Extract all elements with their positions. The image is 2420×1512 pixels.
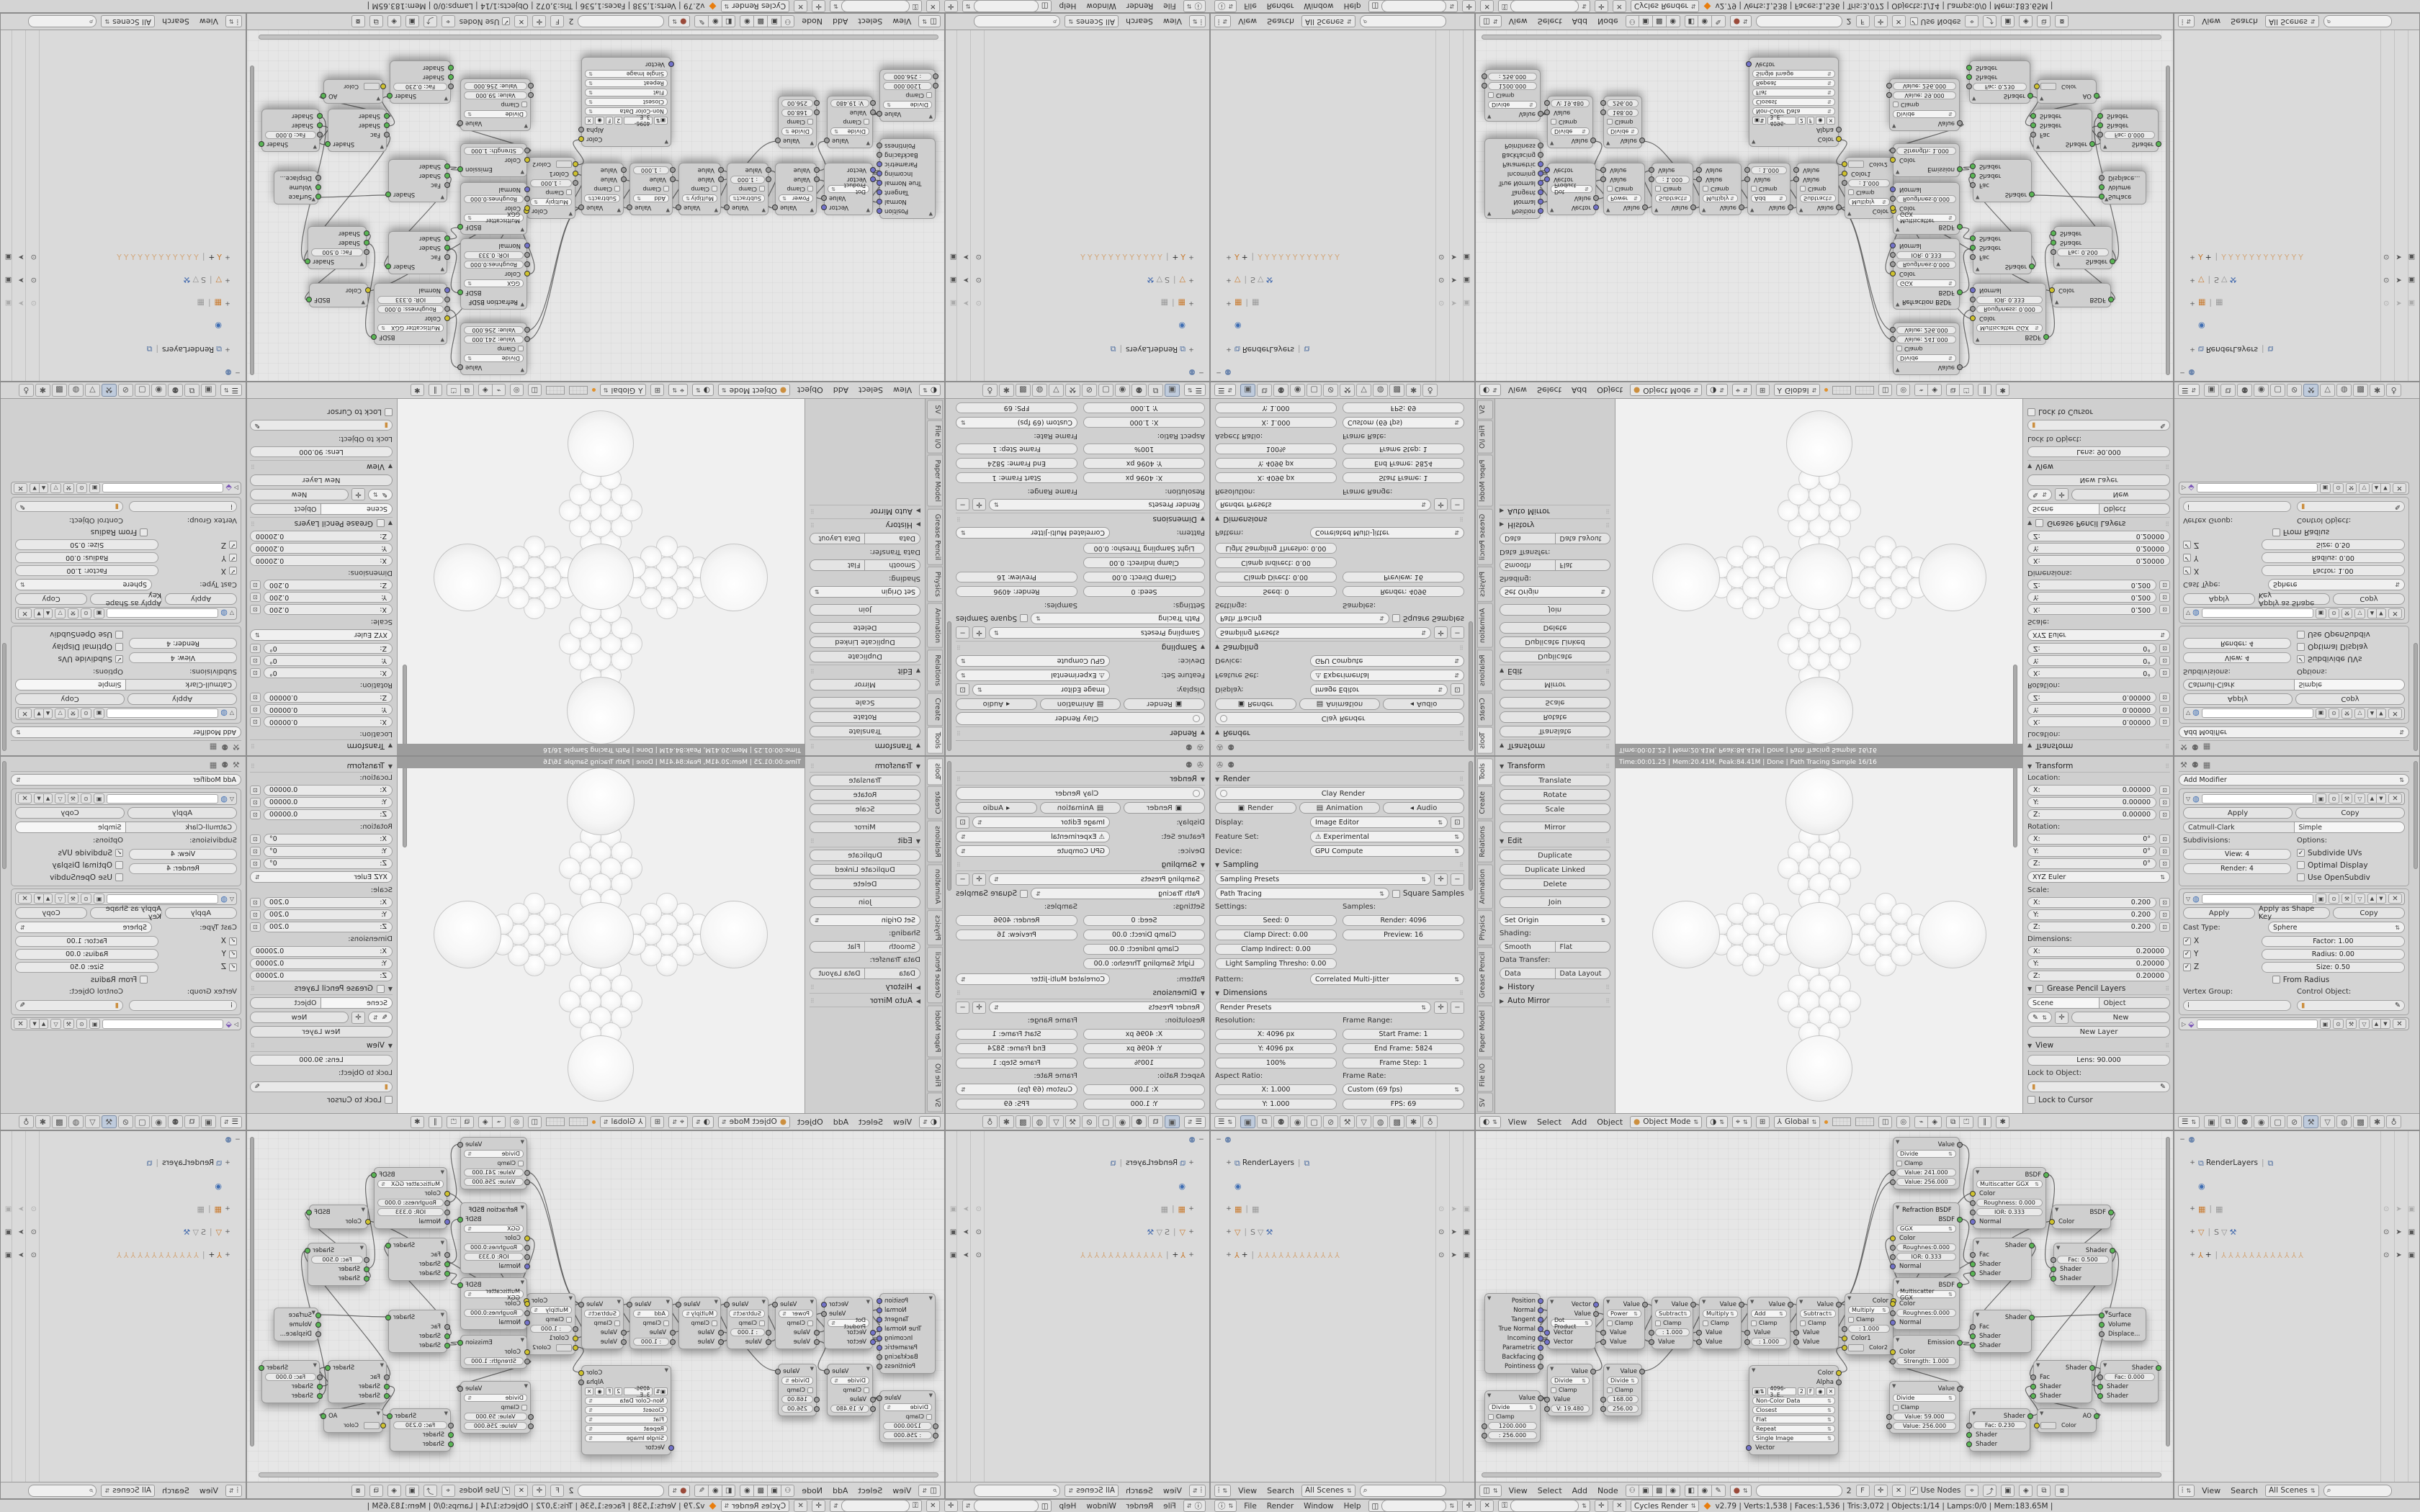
node-value-field[interactable]: Value: 59.000 — [464, 1413, 527, 1421]
value-field[interactable]: Seed: 0 — [1215, 915, 1337, 926]
checkbox[interactable] — [518, 1161, 524, 1166]
action-button[interactable]: ◂Audio — [1383, 802, 1464, 814]
checkbox[interactable] — [1655, 186, 1661, 192]
header-icon-button[interactable]: ⌖ — [442, 16, 455, 28]
node-socket-icon[interactable] — [877, 161, 882, 167]
pencil-dropdown[interactable]: ✎⇅ — [2027, 489, 2052, 500]
checkbox[interactable] — [864, 1387, 869, 1393]
editor-type-button[interactable]: ⓘ⇅ — [1214, 0, 1237, 12]
image-name[interactable]: 4096-3..E.. — [624, 117, 653, 125]
checkbox[interactable]: ✓ — [2183, 554, 2191, 562]
value-field[interactable]: FPS: 69 — [956, 403, 1077, 414]
value-field[interactable]: Clamp Indirect: 0.00 — [1215, 944, 1337, 955]
value-field[interactable]: Preview: 16 — [956, 930, 1077, 940]
expand-icon[interactable]: + — [1188, 346, 1195, 353]
checkbox-wrap[interactable]: ✓Z — [2183, 963, 2259, 971]
node-row-val[interactable]: : 1.000 — [530, 179, 572, 188]
presets-dropdown[interactable]: Sampling Presets⇅ — [1215, 627, 1431, 639]
action-button[interactable]: Duplicate Linked — [810, 636, 920, 648]
menu-item[interactable]: File — [1241, 2, 1260, 11]
axis-value-field[interactable]: Y:0° — [2027, 846, 2156, 857]
node-socket-icon[interactable] — [524, 1320, 530, 1326]
node-socket-icon[interactable] — [1836, 1370, 1842, 1376]
node-socket-icon[interactable] — [676, 1302, 681, 1308]
layout-select[interactable]: ◫⇅ — [962, 0, 1052, 12]
properties-tab[interactable]: ⊘ — [1323, 384, 1338, 397]
checkbox[interactable] — [712, 186, 717, 192]
node-socket-icon[interactable] — [1836, 1380, 1842, 1385]
dropdown[interactable]: Set Origin⇅ — [1500, 586, 1610, 598]
scrollbar[interactable] — [1469, 621, 1473, 751]
tool-shelf-tab-animation[interactable]: Animation — [927, 603, 943, 648]
expand-icon[interactable]: + — [1188, 300, 1195, 307]
node-socket-icon[interactable] — [578, 1380, 584, 1385]
scrollbar[interactable] — [947, 621, 951, 751]
properties-tab[interactable]: ▩ — [1389, 1115, 1404, 1128]
properties-tab[interactable]: ▢ — [2270, 384, 2285, 397]
node-row-chk[interactable]: Clamp — [1488, 91, 1537, 100]
properties-tab[interactable]: ⧉ — [1257, 1115, 1272, 1128]
node[interactable]: ▼ShaderFac: 0.500ShaderShader — [2053, 226, 2112, 269]
node-socket-icon[interactable] — [1744, 1339, 1750, 1345]
action-button[interactable]: Mirror — [1500, 679, 1610, 690]
toggle-icon[interactable]: ▣ — [1464, 1251, 1470, 1259]
lock-icon[interactable]: ⊡ — [2159, 786, 2170, 795]
node-socket-icon[interactable] — [1957, 166, 1963, 172]
cast-value-field[interactable]: Factor: 1.00 — [2262, 936, 2405, 947]
pause-icon-button[interactable]: ∥ — [429, 384, 442, 397]
toggle-button[interactable]: Simple — [15, 822, 126, 833]
node-socket-icon[interactable] — [1544, 1406, 1550, 1412]
node-socket-icon[interactable] — [2108, 297, 2114, 302]
node-dropdown[interactable]: Repeat⇅ — [585, 1425, 668, 1433]
node-socket-icon[interactable] — [1538, 180, 1543, 186]
dropdown[interactable]: Add Modifier⇅ — [11, 774, 241, 786]
node-value-field[interactable]: Roughnes:0.000 — [1896, 195, 1956, 203]
value-field[interactable]: Seed: 0 — [1083, 915, 1205, 926]
lock-icon[interactable]: ⊡ — [250, 693, 261, 702]
tool-shelf-tab-physics[interactable]: Physics — [927, 910, 943, 945]
move-modifier-button[interactable]: ▲ — [39, 1019, 48, 1029]
properties-tab[interactable]: ⧉ — [184, 384, 200, 397]
node-socket-icon[interactable] — [444, 245, 450, 251]
node-value-field[interactable]: Roughnes:0.000 — [464, 195, 524, 203]
action-button[interactable]: ▤Animation — [1299, 698, 1381, 710]
tool-shelf-tab-create[interactable]: Create — [927, 786, 943, 819]
node-value-field[interactable]: : 1.000 — [1848, 1325, 1890, 1333]
node-socket-icon[interactable] — [877, 171, 882, 176]
node-row-img[interactable]: ▣⇅4096-3..E..2F◉✕ — [585, 1387, 668, 1396]
checkbox[interactable] — [1392, 615, 1400, 623]
tool-shelf-tab-tools[interactable]: Tools — [927, 758, 943, 785]
dropdown[interactable]: Add Modifier⇅ — [2179, 774, 2409, 786]
properties-tab[interactable]: ◉ — [2254, 1115, 2269, 1128]
use-nodes-checkbox[interactable]: ✓Use Nodes — [1910, 17, 1961, 26]
node-checkbox[interactable]: Clamp — [1607, 119, 1633, 125]
cast-value-field[interactable]: Factor: 1.00 — [15, 936, 158, 947]
node-socket-icon[interactable] — [259, 141, 264, 147]
panel-title[interactable]: ▼Transform⠿ — [1500, 739, 1610, 752]
toggle-icon[interactable]: ▣ — [950, 276, 956, 284]
node-socket-icon[interactable] — [1590, 138, 1596, 143]
checkbox[interactable] — [521, 1405, 527, 1410]
modifier-toggle-icon[interactable]: ▽ — [55, 793, 66, 804]
value-field[interactable]: X: 1.000 — [1215, 1084, 1337, 1095]
node-row-sel[interactable]: Power⇅ — [779, 1309, 813, 1318]
modifier-toggle-icon[interactable]: ▣ — [89, 1019, 100, 1029]
node-dropdown[interactable]: Divide⇅ — [1607, 1377, 1639, 1385]
node-dropdown[interactable]: Subtract⇅ — [1655, 194, 1691, 202]
material-select[interactable]: ●⇅ — [668, 1485, 690, 1497]
properties-tab[interactable]: ▩ — [1389, 384, 1404, 397]
properties-tab[interactable]: ⚒ — [1065, 384, 1080, 397]
checkbox[interactable] — [377, 520, 385, 528]
modifier-header[interactable]: ▽◍▣⊙⚒▽▲▼✕ — [15, 792, 237, 805]
axis-value-field[interactable]: Z:0.20000 — [2027, 971, 2170, 981]
editor-type-button[interactable]: ◐⇅ — [919, 384, 941, 397]
lock-icon-button[interactable]: ⊡ — [1451, 816, 1464, 829]
node-row-val[interactable]: 1200.000 — [883, 81, 932, 91]
checkbox[interactable] — [115, 631, 123, 639]
node[interactable]: ▼BSDFColor — [309, 1205, 368, 1229]
restriction-toggles[interactable]: ⊙➤▣ — [5, 1205, 37, 1213]
presets-dropdown[interactable]: Sampling Presets⇅ — [989, 627, 1205, 639]
tool-shelf-tab-physics[interactable]: Physics — [927, 567, 943, 602]
node-checkbox[interactable]: Clamp — [1751, 1320, 1778, 1326]
delete-modifier-button[interactable]: ✕ — [14, 483, 27, 493]
node-row-chk[interactable]: Clamp — [781, 1385, 813, 1395]
cast-value-field[interactable]: Radius: 0.00 — [2262, 949, 2405, 960]
node[interactable]: ▼ValueSubtract⇅Clamp: 1.000Value — [727, 163, 768, 215]
checkbox-wrap[interactable]: Lock to Cursor — [327, 408, 393, 417]
node-socket-icon[interactable] — [524, 243, 530, 248]
modifier-toggle-icon[interactable]: ⊙ — [2329, 708, 2339, 719]
node[interactable]: ▼ShaderFac: 0.500ShaderShader — [308, 226, 367, 269]
toggle-icon[interactable]: ➤ — [963, 300, 969, 307]
node-row-val[interactable]: Fac: 0.500 — [311, 248, 363, 257]
manipulator-icon-button[interactable]: ⊞ — [1756, 384, 1770, 397]
menu-item[interactable]: View — [1160, 17, 1185, 27]
properties-tab[interactable]: ◍ — [2336, 384, 2352, 397]
node-value-field[interactable]: IOR: 0.333 — [464, 251, 524, 259]
checkbox-wrap[interactable]: ✓Y — [161, 950, 237, 958]
node-row-val[interactable]: IOR: 0.333 — [377, 1207, 444, 1217]
node-socket-icon[interactable] — [775, 1369, 781, 1374]
expand-icon[interactable]: − — [2179, 369, 2186, 376]
node-socket-icon[interactable] — [1836, 1302, 1842, 1308]
action-button[interactable]: ◂Audio — [1383, 698, 1464, 710]
axis-value-field[interactable]: Y:0.20000 — [250, 543, 393, 554]
outliner-row[interactable]: −⚉ — [946, 366, 1209, 378]
lock-icon[interactable]: ⊡ — [2159, 910, 2170, 919]
axis-value-field[interactable]: X:0.200 — [264, 897, 393, 908]
node-checkbox[interactable]: Clamp — [1848, 1316, 1875, 1323]
node-socket-icon[interactable] — [1649, 167, 1654, 173]
value-field[interactable]: Y: 1.000 — [1215, 403, 1337, 414]
lock-icon[interactable]: ⊡ — [2159, 810, 2170, 819]
node-row-sw[interactable]: Color2 — [1848, 1343, 1890, 1352]
properties-tab[interactable]: ⊘ — [118, 1115, 133, 1128]
node[interactable]: ▼ValueDivide⇅Clamp168.00256.00 — [778, 1364, 817, 1416]
properties-tab[interactable]: ▩ — [2353, 1115, 2368, 1128]
node-socket-icon[interactable] — [1970, 235, 1976, 241]
node-socket-icon[interactable] — [1649, 1339, 1654, 1345]
node-value-field[interactable]: 168.00 — [781, 1395, 813, 1403]
action-button[interactable]: ▤Animation — [1299, 802, 1381, 814]
value-field[interactable]: View: 4 — [2183, 849, 2291, 860]
value-field[interactable]: Clamp Direct: 0.00 — [1083, 572, 1205, 583]
toggle-icon[interactable]: ➤ — [2396, 253, 2401, 261]
node-socket-icon[interactable] — [766, 167, 771, 173]
lock-icon[interactable]: ⊡ — [250, 859, 261, 868]
action-button[interactable]: Mirror — [810, 679, 920, 690]
properties-tab[interactable]: ⊘ — [2287, 1115, 2302, 1128]
checkbox[interactable]: ✓ — [2297, 849, 2305, 857]
properties-tab[interactable]: ▩ — [52, 1115, 67, 1128]
action-button[interactable]: Apply as Shape Key — [2258, 907, 2330, 919]
checkbox[interactable] — [1848, 190, 1854, 196]
pencil-dropdown[interactable]: ✎⇅ — [2027, 1012, 2052, 1023]
cast-value-field[interactable]: Size: 0.50 — [15, 962, 158, 973]
modifier-toggle-icon[interactable]: ▽ — [50, 483, 61, 493]
node-row-val[interactable]: Value: 256.000 — [464, 81, 527, 91]
properties-tab[interactable]: ▢ — [135, 384, 150, 397]
node-dropdown[interactable]: Flat⇅ — [585, 1416, 668, 1423]
panel-title-collapsed[interactable]: ▶Auto Mirror⠿ — [1500, 995, 1610, 1007]
tool-shelf-tab-file-i-o[interactable]: File I/O — [1477, 420, 1493, 454]
use-nodes-checkbox[interactable]: ✓Use Nodes — [460, 1486, 511, 1495]
action-button[interactable]: Scale — [1500, 804, 1610, 815]
color-swatch[interactable] — [1848, 1344, 1864, 1351]
axis-value-field[interactable]: Z:0.200 — [264, 580, 393, 590]
node-checkbox[interactable]: Clamp — [1893, 102, 1919, 108]
outliner-row[interactable]: +▽|S▽⚒⊙➤▣ — [946, 274, 1209, 286]
value-field[interactable]: Render: 4 — [2183, 639, 2291, 649]
add-preset-button[interactable]: ✛ — [1434, 873, 1448, 886]
node-socket-icon[interactable] — [457, 1386, 463, 1392]
expand-icon[interactable]: + — [224, 1205, 231, 1212]
tool-shelf-tab-tools[interactable]: Tools — [1477, 758, 1493, 785]
checkbox[interactable]: ✓ — [2183, 963, 2191, 971]
properties-tab[interactable]: ♁ — [982, 384, 998, 397]
node-row-chk[interactable]: Clamp — [883, 1412, 932, 1421]
node[interactable]: ▼ValuePower⇅ClampValueValue — [775, 1297, 817, 1349]
tool-shelf-tab-physics[interactable]: Physics — [1477, 567, 1493, 602]
menu-item[interactable]: Add — [830, 386, 851, 395]
header-icon-button[interactable]: ⤴ — [423, 1485, 437, 1497]
object-picker-field[interactable]: ▮✎ — [2297, 502, 2405, 513]
node-row-val[interactable]: : 256.000 — [883, 72, 932, 81]
checkbox[interactable] — [614, 1320, 620, 1326]
node-row-sel[interactable]: Power⇅ — [1607, 194, 1641, 203]
node-value-field[interactable]: Fac: 0.500 — [311, 248, 363, 256]
node-row-val[interactable]: Roughnes:0.000 — [464, 1308, 524, 1318]
node-socket-icon[interactable] — [573, 1326, 578, 1332]
menu-item[interactable]: Help — [1341, 2, 1364, 11]
node[interactable]: ▼ShaderFac: 0.000ShaderShader — [261, 1360, 320, 1403]
outliner-row[interactable]: +⅄+|⅄⅄⅄⅄⅄⅄⅄⅄⅄⅄⅄⅄⊙➤▣ — [946, 1249, 1209, 1261]
node-socket-icon[interactable] — [877, 189, 882, 195]
node-row-sel[interactable]: Multiply⇅ — [530, 197, 572, 207]
action-button[interactable]: Duplicate Linked — [810, 864, 920, 876]
node-dropdown[interactable]: Non-Color Data⇅ — [1752, 1397, 1835, 1405]
node[interactable]: ▼ShaderFacShaderShader — [328, 109, 387, 152]
action-button[interactable]: Translate — [1500, 726, 1610, 737]
value-field[interactable]: X: 4096 px — [1083, 1029, 1205, 1040]
node[interactable]: ▼EmissionColorStrength: 1.000 — [460, 1335, 527, 1369]
node-socket-icon[interactable] — [870, 1397, 876, 1403]
axis-value-field[interactable]: Y:0.20000 — [2027, 958, 2170, 969]
node-dropdown[interactable]: Multiply⇅ — [530, 1306, 572, 1314]
scrollbar[interactable] — [2, 643, 6, 751]
action-button[interactable]: ◂Audio — [956, 802, 1037, 814]
axis-value-field[interactable]: Y:0.00000 — [264, 704, 393, 715]
node-value-field[interactable]: V: 19.480 — [830, 99, 869, 107]
node-dropdown[interactable]: Closest⇅ — [1752, 98, 1835, 106]
dropdown[interactable]: Image Editor⇅ — [1310, 816, 1448, 828]
node-socket-icon[interactable] — [524, 1236, 530, 1241]
menu-item[interactable]: View — [197, 1486, 221, 1495]
cast-value-field[interactable]: Size: 0.50 — [2262, 962, 2405, 973]
outliner-row[interactable]: +▽|S▽⚒⊙➤▣ — [2174, 274, 2419, 286]
properties-tab[interactable]: ⧉ — [2220, 1115, 2236, 1128]
axis-value-field[interactable]: Y:0.200 — [2027, 909, 2156, 920]
node-row-val[interactable]: V: 19.480 — [1551, 1404, 1590, 1413]
checkbox[interactable] — [759, 1320, 765, 1326]
node-dropdown[interactable]: Add⇅ — [1751, 194, 1787, 202]
toggle-icon[interactable]: ⊙ — [2383, 253, 2389, 261]
tool-shelf-tab-animation[interactable]: Animation — [927, 864, 943, 909]
checkbox-row[interactable]: Square Samples — [1392, 889, 1464, 898]
node-value-field[interactable]: 256.00 — [1607, 1405, 1639, 1413]
node-checkbox[interactable]: Clamp — [593, 1320, 620, 1326]
modifier-toggle-icon[interactable]: ⊙ — [76, 483, 87, 493]
node-row-chk[interactable]: Clamp — [1893, 100, 1956, 109]
viewport-canvas[interactable]: Time:00:01.25 | Mem:20.41M, Peak:84.41M … — [398, 399, 805, 755]
scope-select[interactable]: All Scenes⇅ — [1301, 1485, 1355, 1497]
checkbox[interactable] — [807, 1387, 813, 1393]
move-modifier-button[interactable]: ▼ — [34, 894, 43, 904]
modifier-header[interactable]: ▽◍▣⊙⚒▽▲▼✕ — [2183, 892, 2405, 905]
toggle-button[interactable]: Scene — [321, 997, 393, 1009]
node-socket-icon[interactable] — [877, 1326, 882, 1332]
restriction-toggles[interactable]: ⊙➤▣ — [1438, 1205, 1470, 1213]
node-row-val[interactable]: V: 19.480 — [830, 1404, 869, 1413]
properties-tab[interactable]: ▣ — [1240, 1115, 1255, 1128]
lock-icon[interactable]: ⊡ — [250, 580, 261, 590]
expand-icon[interactable]: + — [1225, 1205, 1232, 1212]
toggle-icon[interactable]: ⊙ — [31, 1251, 37, 1259]
properties-tab[interactable]: ◍ — [1032, 384, 1047, 397]
checkbox-wrap[interactable]: From Radius — [2272, 976, 2330, 984]
add-preset-button[interactable]: ✛ — [972, 873, 986, 886]
modifier-toggle-icon[interactable]: ▽ — [2354, 894, 2365, 904]
editor-type-button[interactable]: ◐⇅ — [1479, 1116, 1501, 1128]
image-datablock-row[interactable]: ▣⇅4096-3..E..2F◉✕ — [585, 117, 668, 125]
node-socket-icon[interactable] — [524, 1301, 530, 1307]
node-socket-icon[interactable] — [524, 261, 530, 267]
node-row-chk[interactable]: Clamp — [830, 117, 869, 127]
menu-item[interactable]: Node — [799, 17, 825, 27]
editor-type-button[interactable]: ⦙⇅ — [2178, 16, 2195, 28]
node[interactable]: ▼PositionNormalTangentTrue NormalIncomin… — [1484, 138, 1541, 219]
dropdown[interactable]: ⚠ Experimental⇅ — [1310, 670, 1464, 681]
value-field[interactable]: X: 1.000 — [1083, 1084, 1205, 1095]
move-modifier-button[interactable]: ▲ — [2367, 608, 2377, 618]
checkbox[interactable]: ✓ — [229, 950, 237, 958]
node-row-sel[interactable]: Subtract⇅ — [585, 1309, 620, 1318]
node-dropdown[interactable]: Power⇅ — [1607, 194, 1641, 202]
cast-value-field[interactable]: Radius: 0.00 — [15, 553, 158, 564]
node-dropdown[interactable]: Multiply⇅ — [682, 194, 717, 202]
node-checkbox[interactable]: Clamp — [1896, 346, 1923, 352]
node-socket-icon[interactable] — [1842, 1326, 1847, 1332]
node-value-field[interactable]: Value: 256.000 — [464, 1422, 527, 1430]
expand-icon[interactable]: + — [224, 1228, 231, 1236]
node-row-sel[interactable]: Subtract⇅ — [585, 194, 620, 203]
toggle-icon[interactable]: ⊙ — [1438, 276, 1444, 284]
render-icon-button[interactable]: ⧉ — [460, 1116, 474, 1128]
modifier-toggle-icon[interactable]: ▽ — [2354, 608, 2365, 618]
node-socket-icon[interactable] — [877, 1395, 882, 1401]
material-select[interactable]: ●⇅ — [668, 16, 690, 28]
node[interactable]: ▼ColorAlpha▣⇅4096-3..E..2F◉✕Non-Color Da… — [1749, 57, 1839, 147]
dropdown[interactable]: Sphere⇅ — [2268, 579, 2405, 590]
outliner-row[interactable]: +⧉RenderLayers|⧉ — [946, 1157, 1209, 1169]
editor-type-button[interactable]: ☰⇅ — [2178, 1116, 2200, 1128]
toggle-button[interactable]: Object — [2099, 997, 2171, 1009]
tool-shelf-tab-grease-pencil[interactable]: Grease Pencil — [1477, 947, 1493, 1003]
node[interactable]: ▼ValueSubtract⇅ClampValueValue — [581, 1297, 624, 1349]
node-row-val[interactable]: : 1.000 — [1655, 175, 1690, 184]
node-socket-icon[interactable] — [1482, 1423, 1487, 1429]
properties-tab[interactable]: ▽ — [1049, 1115, 1064, 1128]
node-dropdown[interactable]: Power⇅ — [779, 194, 813, 202]
node-socket-icon[interactable] — [1639, 138, 1645, 143]
material-select[interactable]: ●⇅ — [1730, 16, 1752, 28]
node-socket-icon[interactable] — [444, 297, 450, 302]
properties-tab[interactable]: ✱ — [1406, 1115, 1421, 1128]
header-icon-button[interactable]: ◎ — [1896, 1116, 1910, 1128]
menu-item[interactable]: Select — [855, 1486, 885, 1495]
node-row-val[interactable]: : 1.000 — [633, 1337, 669, 1346]
outliner-row[interactable]: +⧉RenderLayers|⧉ — [1, 343, 246, 355]
node[interactable]: ▼ColorMultiply⇅Clamp: 1.000Color1Color2 — [1845, 1293, 1894, 1355]
tool-shelf-tab-tools[interactable]: Tools — [1477, 727, 1493, 754]
axis-value-field[interactable]: Z:0.200 — [264, 922, 393, 932]
value-field[interactable]: Start Frame: 1 — [1343, 1029, 1464, 1040]
panel-title[interactable]: ▼Render⠿ — [1215, 773, 1464, 786]
node-row-chk[interactable]: Clamp — [779, 184, 813, 194]
node-socket-icon[interactable] — [444, 1343, 450, 1349]
value-field[interactable]: Start Frame: 1 — [956, 473, 1077, 484]
shader-context-icon-button[interactable]: ◉ — [708, 1485, 722, 1497]
modifier-toggle-icon[interactable]: ⚒ — [2341, 608, 2352, 618]
node-row-sel[interactable]: Multiply⇅ — [530, 1305, 572, 1315]
lock-icon[interactable]: ⊡ — [250, 847, 261, 856]
value-field[interactable]: Light Sampling Thresho: 0.00 — [1215, 544, 1337, 554]
dropdown[interactable]: Custom (69 fps)⇅ — [1343, 417, 1464, 428]
modifier-toggle-icon[interactable]: ⚒ — [68, 608, 79, 618]
panel-title-collapsed[interactable]: ▶History⠿ — [810, 518, 920, 531]
checkbox[interactable] — [759, 186, 765, 192]
value-field[interactable]: Y: 1.000 — [1083, 403, 1205, 414]
checkbox[interactable] — [115, 873, 123, 881]
node-socket-icon[interactable] — [457, 1282, 463, 1288]
node-value-field[interactable]: Fac: 0.500 — [2057, 248, 2109, 256]
toggle-icon[interactable]: ⊙ — [31, 253, 37, 261]
outliner-row[interactable]: +⅄+|⅄⅄⅄⅄⅄⅄⅄⅄⅄⅄⅄⅄⊙➤▣ — [946, 251, 1209, 263]
